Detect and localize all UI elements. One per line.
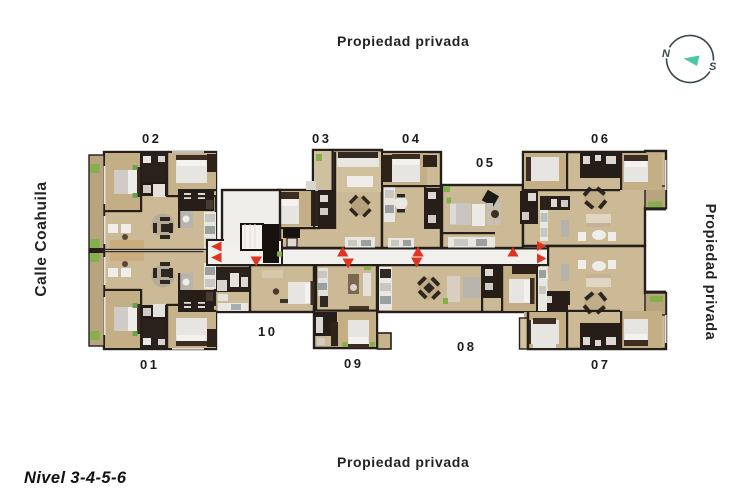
svg-text:S: S bbox=[709, 61, 717, 73]
svg-text:N: N bbox=[662, 48, 671, 60]
